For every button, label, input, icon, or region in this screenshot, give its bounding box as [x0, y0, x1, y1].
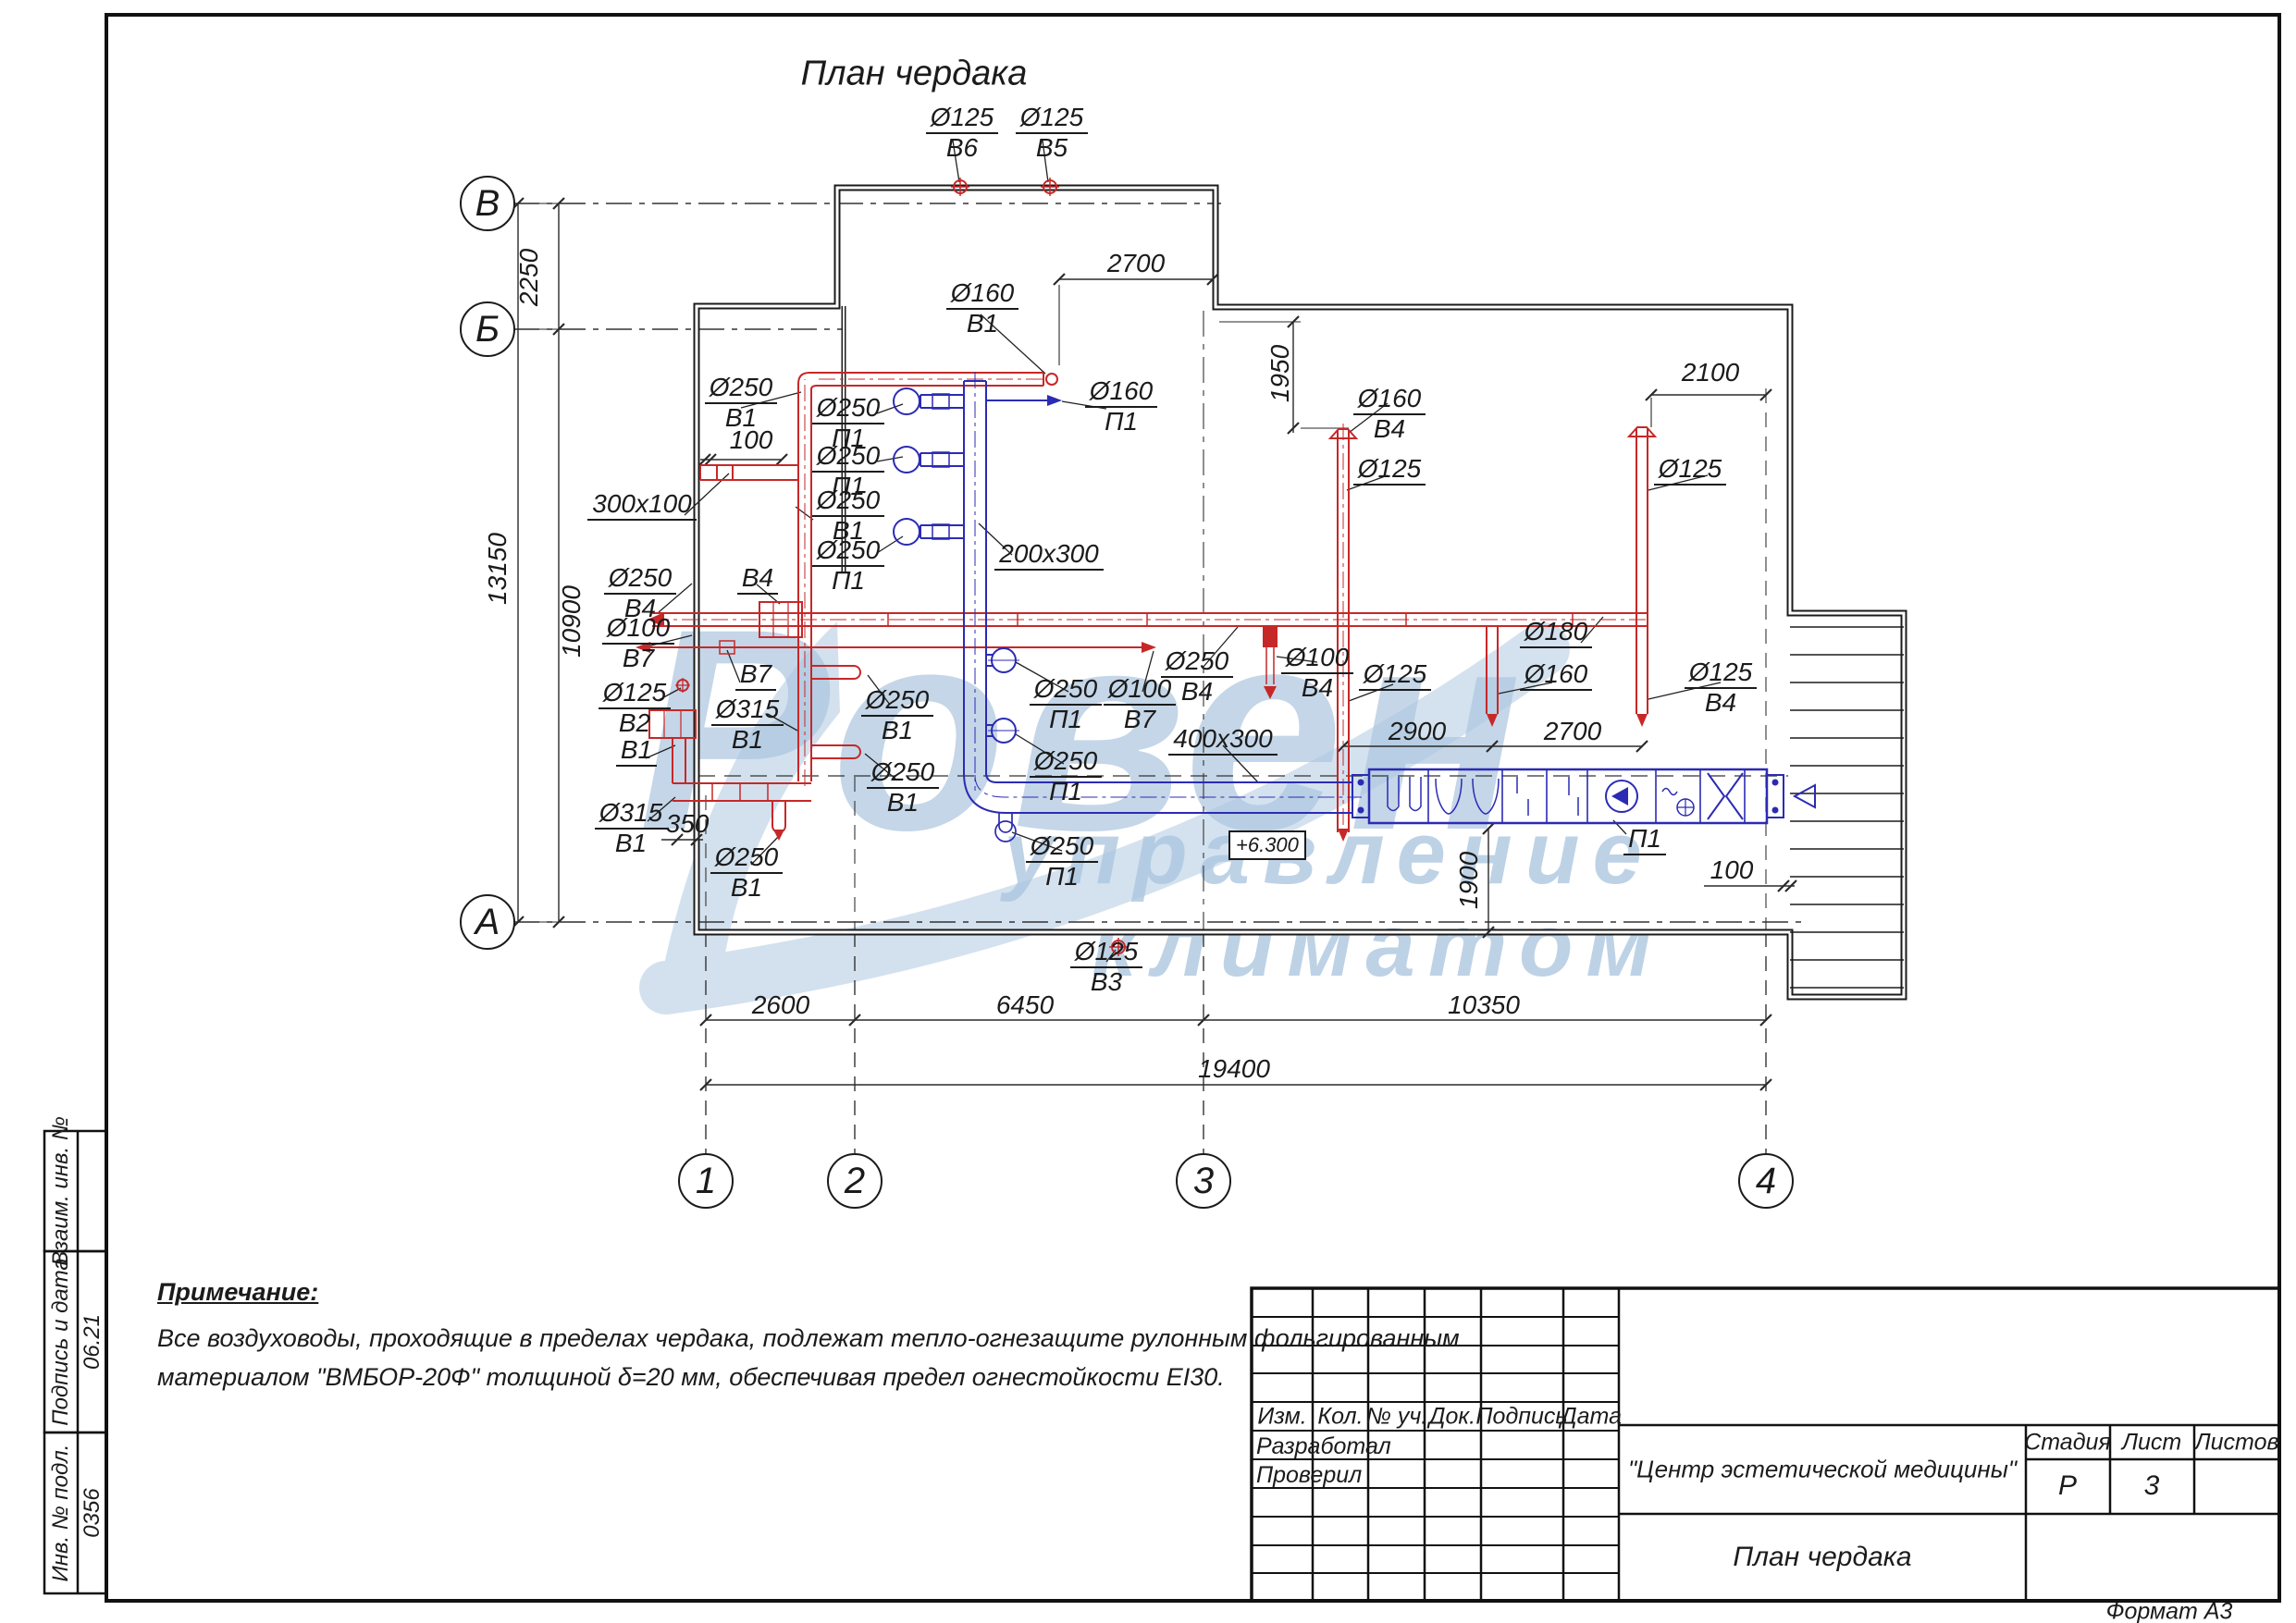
duct-label: Ø250В4 — [1140, 647, 1254, 706]
stamp-stage-header: Стадия — [2024, 1430, 2111, 1457]
stamp-sheets-header: Листов — [2194, 1430, 2278, 1457]
grid-bubble-col-2: 2 — [827, 1153, 883, 1209]
duct-label: Ø125В3 — [1049, 938, 1164, 996]
stamp-col-data: Дата — [1561, 1404, 1622, 1431]
dim-2900: 2900 — [1389, 717, 1446, 746]
note-line: Все воздуховоды, проходящие в пределах ч… — [157, 1320, 1460, 1359]
grid-bubble-row-2: Б — [460, 301, 515, 357]
duct-label: Ø315В1 — [690, 695, 805, 754]
stamp-col-kol: Кол. — [1317, 1404, 1363, 1431]
sidebar-caption-inv: Инв. № подл. — [48, 1445, 74, 1582]
stamp-stage-value: Р — [2058, 1470, 2077, 1502]
dim-19400: 19400 — [1198, 1054, 1270, 1084]
duct-label: Ø250В1 — [689, 843, 804, 902]
elevation-mark: +6.300 — [1228, 830, 1306, 860]
stamp-col-podpis: Подпись — [1475, 1404, 1567, 1431]
stamp-col-dok: Док. — [1429, 1404, 1475, 1431]
stamp-doc-title: План чердака — [1733, 1542, 1911, 1573]
stamp-project-name: "Центр эстетической медицины" — [1628, 1456, 2017, 1484]
duct-label: Ø125 — [1633, 455, 1747, 486]
duct-label: Ø250П1 — [1005, 832, 1119, 891]
format-note: Формат А3 — [2106, 1599, 2233, 1623]
grid-bubble-col-3: 3 — [1176, 1153, 1231, 1209]
duct-label: 400x300 — [1166, 725, 1280, 756]
duct-label: Ø100В7 — [581, 614, 696, 672]
sidebar-caption-vzaim: Взаим. инв. № — [48, 1116, 74, 1266]
duct-label: П1 — [1587, 825, 1702, 855]
dim-100-right: 100 — [1710, 855, 1754, 885]
duct-label: 200x300 — [992, 540, 1106, 571]
grid-bubble-row-1: В — [460, 176, 515, 231]
duct-label: Ø125В4 — [1663, 658, 1778, 717]
dim-1900: 1900 — [1454, 852, 1484, 909]
drawing-sheet: Ровен управление климатом — [0, 0, 2296, 1623]
sidebar-caption-podpis: Подпись и дата — [48, 1258, 74, 1426]
duct-label: Ø160В4 — [1332, 385, 1447, 443]
duct-label: Ø250В1 — [846, 758, 960, 817]
duct-label: Ø125В5 — [994, 104, 1109, 162]
stamp-col-izm: Изм. — [1257, 1404, 1306, 1431]
sidebar-value-inv: 0356 — [80, 1488, 105, 1537]
dim-2700-mid: 2700 — [1544, 717, 1601, 746]
duct-label: В4 — [700, 564, 815, 595]
dim-10350: 10350 — [1448, 990, 1520, 1020]
page-title: План чердака — [801, 55, 1028, 94]
stamp-col-uch: № уч. — [1366, 1404, 1427, 1431]
duct-label: Ø250В1 — [684, 374, 798, 432]
duct-label: Ø160П1 — [1064, 377, 1179, 436]
grid-bubble-col-4: 4 — [1738, 1153, 1794, 1209]
duct-label: В1 — [579, 736, 694, 767]
duct-label: Ø125 — [1338, 660, 1452, 691]
dim-2250: 2250 — [514, 249, 544, 306]
sidebar-value-date: 06.21 — [80, 1314, 105, 1370]
duct-label: Ø125 — [1332, 455, 1447, 486]
stamp-sheet-value: 3 — [2144, 1470, 2160, 1502]
duct-label: В7 — [698, 660, 813, 691]
duct-label: Ø180 — [1499, 618, 1613, 648]
note-block: Примечание: Все воздуховоды, проходящие … — [157, 1278, 1460, 1397]
duct-label: Ø160В1 — [925, 279, 1040, 338]
duct-label: Ø160 — [1499, 660, 1613, 691]
duct-label: 300x100 — [585, 490, 699, 521]
duct-label: Ø125В2 — [577, 679, 692, 737]
duct-label: Ø315В1 — [574, 799, 688, 857]
dim-2100: 2100 — [1682, 358, 1739, 387]
stamp-row-developed: Разработал — [1256, 1433, 1391, 1460]
dim-2600: 2600 — [752, 990, 809, 1020]
dim-1950: 1950 — [1265, 345, 1295, 402]
note-heading: Примечание: — [157, 1278, 1460, 1307]
stamp-row-checked: Проверил — [1256, 1462, 1362, 1489]
staircase — [1790, 627, 1904, 988]
stamp-sheet-header: Лист — [2122, 1430, 2181, 1457]
note-line: материалом "ВМБОР-20Ф" толщиной δ=20 мм,… — [157, 1359, 1460, 1397]
grid-bubble-col-1: 1 — [678, 1153, 734, 1209]
grid-bubble-row-3: А — [460, 894, 515, 950]
dim-13150: 13150 — [483, 533, 512, 605]
dim-6450: 6450 — [996, 990, 1054, 1020]
duct-label: Ø250П1 — [1008, 747, 1123, 805]
dim-2700-top: 2700 — [1107, 249, 1165, 278]
duct-label: Ø250В1 — [840, 686, 955, 744]
